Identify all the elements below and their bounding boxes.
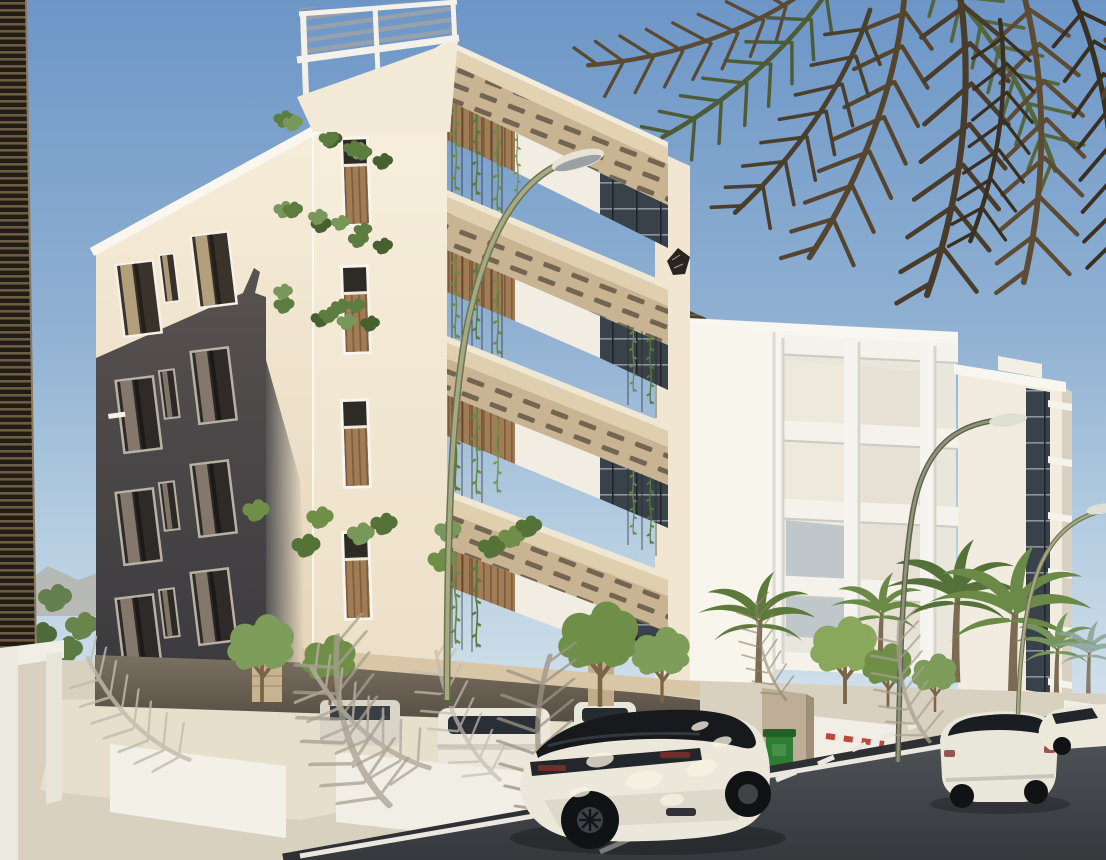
architectural-rendering	[0, 0, 1106, 860]
glazed-stair-strip	[1026, 388, 1050, 694]
